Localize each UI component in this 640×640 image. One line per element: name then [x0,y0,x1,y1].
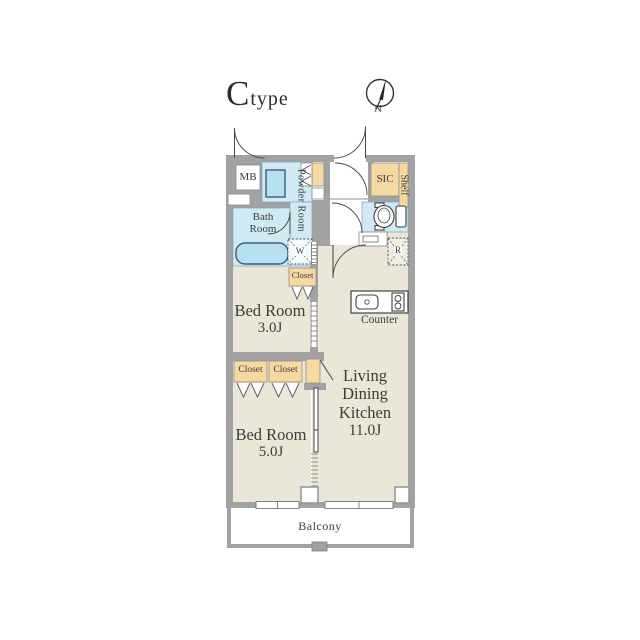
meter-box-door [235,128,265,158]
pillar [395,487,409,503]
shoe-closet-label: SIC [371,173,399,185]
ldk-size: 11.0J [318,422,412,439]
bedroom5-window [256,502,299,509]
stove-icon [392,293,404,311]
bathroom-label: Bath Room [236,211,290,236]
bedroom5-label: Bed Room 5.0J [228,426,314,461]
bedroom5-closet-left-label: Closet [234,365,267,376]
kitchen-counter [351,291,408,313]
bedroom3-size: 3.0J [226,320,314,337]
bedroom3-label: Bed Room 3.0J [226,302,314,337]
north-label: N [370,104,386,116]
entrance-opening [334,155,366,162]
pillar [301,487,318,503]
washbasin [266,170,285,197]
powder-room-sliding-door [312,242,318,264]
ldk-window [325,502,393,509]
balcony-divider [312,542,327,551]
kitchen-sink-icon [356,295,378,309]
bedroom5-size: 5.0J [228,444,314,461]
hall-niche [312,188,324,199]
powder-room-label: Powder Room [294,156,307,246]
hall-storage [312,163,324,186]
bedroom3-closet-label: Closet [289,271,316,281]
bathtub [236,243,288,264]
refrigerator-label: R [388,245,408,255]
bedroom5-closet-right-label: Closet [269,365,302,376]
ldk-label: Living Dining Kitchen 11.0J [318,367,412,440]
floorplan-drawing [0,0,640,640]
meter-box-label: MB [236,171,260,183]
counter-label: Counter [351,314,408,327]
entrance-door [334,127,366,159]
washer-label: W [288,246,312,256]
shelf-label: Shelf [398,160,410,211]
vanity-counter [359,232,387,246]
balcony-label: Balcony [230,520,410,533]
pipe-space-box [228,194,250,205]
